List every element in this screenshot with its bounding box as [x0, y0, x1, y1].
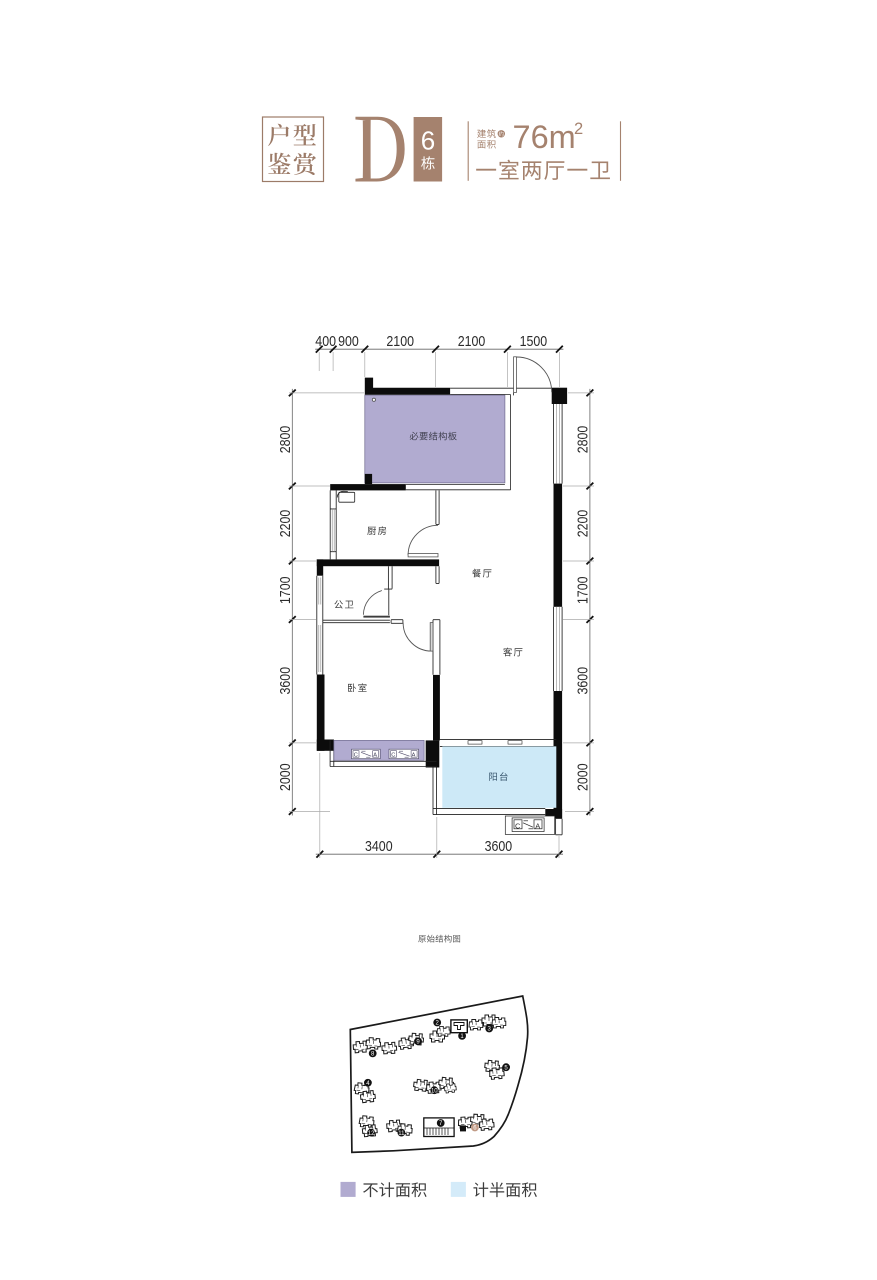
svg-text:2: 2: [574, 120, 583, 138]
svg-text:400: 400: [315, 333, 336, 350]
svg-text:A: A: [535, 821, 540, 830]
svg-text:900: 900: [338, 333, 359, 350]
svg-text:3400: 3400: [365, 838, 393, 855]
svg-text:3600: 3600: [485, 838, 513, 855]
svg-text:2100: 2100: [458, 333, 486, 350]
svg-text:12: 12: [368, 1131, 375, 1137]
svg-text:3600: 3600: [575, 667, 592, 695]
svg-text:2000: 2000: [277, 763, 294, 791]
svg-text:1500: 1500: [520, 333, 548, 350]
svg-text:A: A: [373, 753, 377, 759]
svg-text:2000: 2000: [575, 763, 592, 791]
svg-text:2800: 2800: [575, 426, 592, 454]
svg-text:3600: 3600: [277, 667, 294, 695]
svg-text:10: 10: [431, 1088, 438, 1094]
svg-text:C: C: [515, 821, 521, 830]
svg-text:76m: 76m: [513, 119, 576, 155]
svg-text:2200: 2200: [277, 510, 294, 538]
svg-text:11: 11: [398, 1131, 405, 1137]
svg-text:C: C: [391, 753, 395, 759]
svg-text:6: 6: [421, 126, 435, 156]
svg-text:C: C: [354, 753, 358, 759]
svg-text:A: A: [412, 753, 416, 759]
svg-text:1700: 1700: [277, 577, 294, 605]
svg-text:1700: 1700: [575, 577, 592, 605]
svg-text:2100: 2100: [386, 333, 414, 350]
svg-text:2200: 2200: [575, 510, 592, 538]
svg-text:2800: 2800: [277, 426, 294, 454]
